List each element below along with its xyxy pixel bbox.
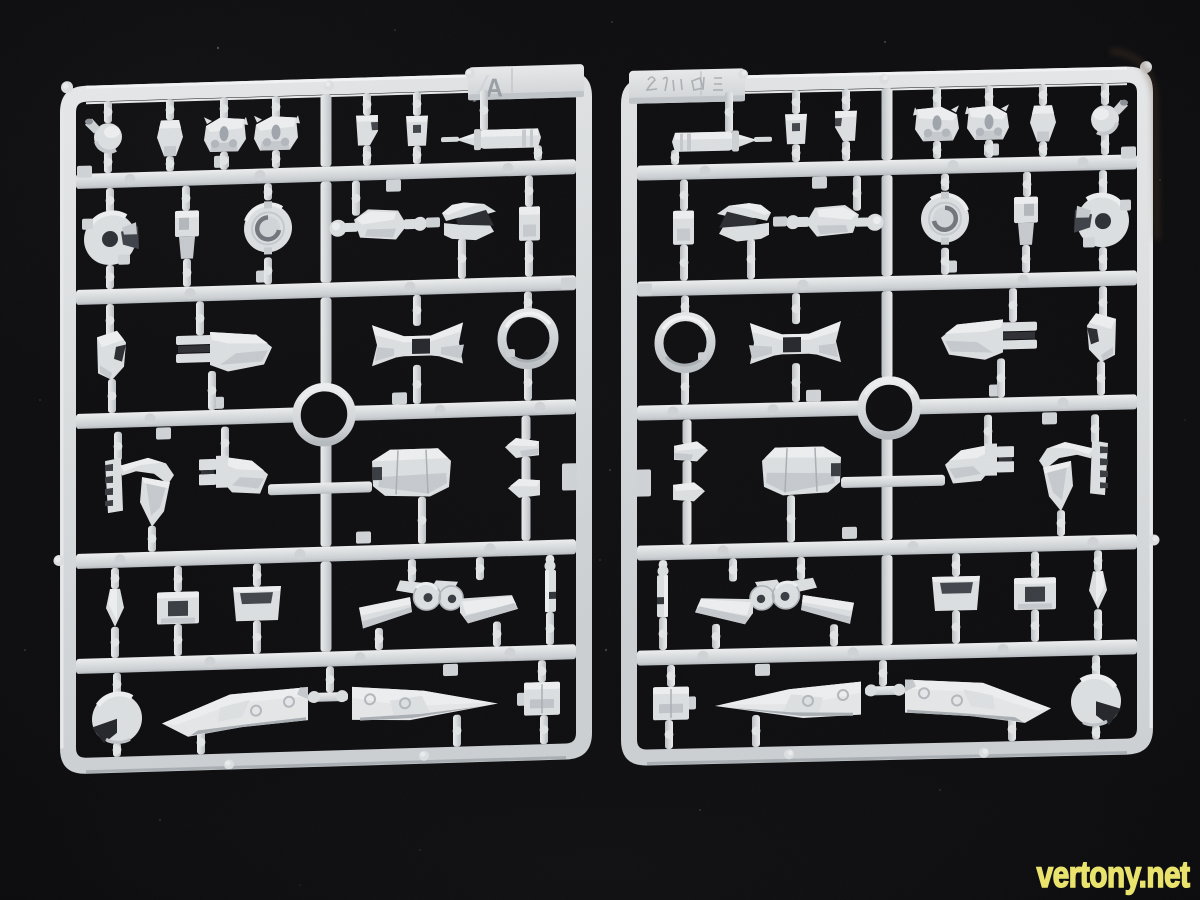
svg-text:vertony.net: vertony.net (1037, 855, 1190, 896)
